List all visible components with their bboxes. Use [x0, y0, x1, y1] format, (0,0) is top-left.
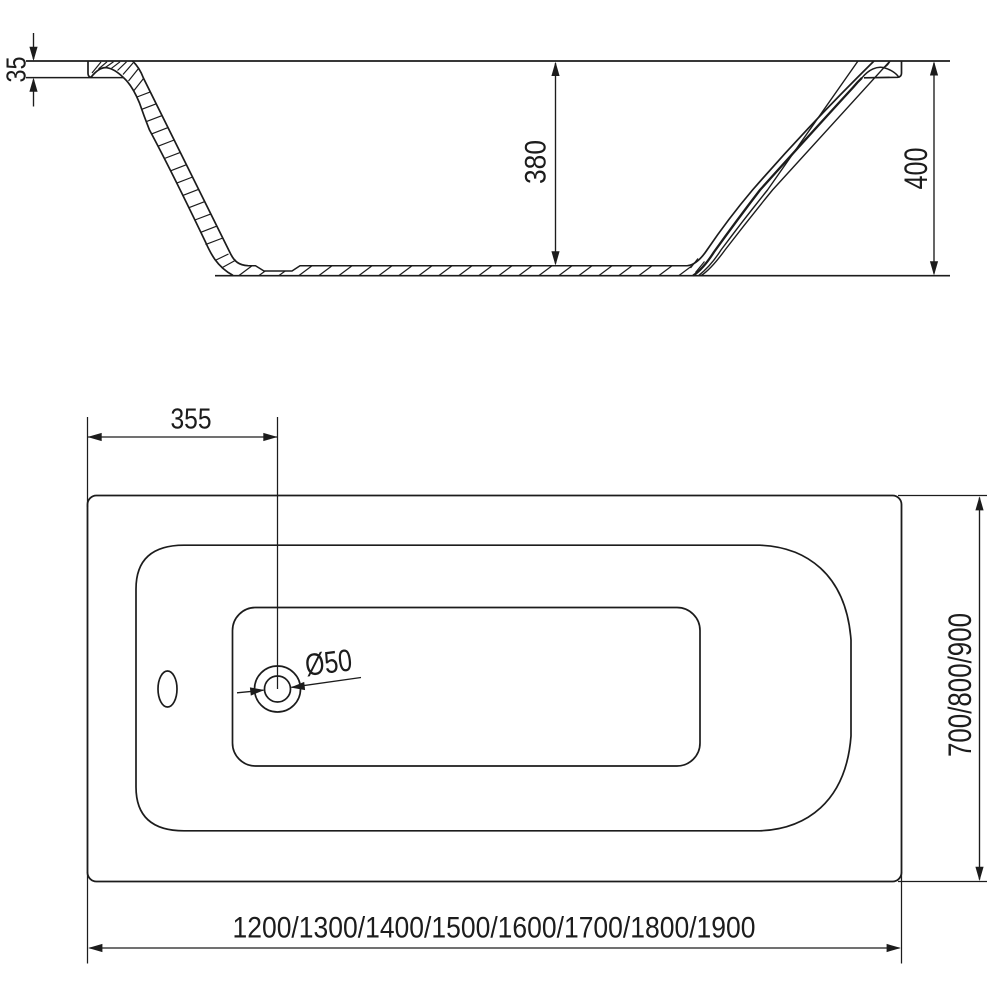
svg-text:Ø50: Ø50 [303, 642, 354, 682]
svg-text:355: 355 [171, 404, 212, 436]
svg-text:35: 35 [1, 57, 32, 83]
svg-text:400: 400 [898, 148, 934, 190]
svg-text:1200/1300/1400/1500/1600/1700/: 1200/1300/1400/1500/1600/1700/1800/1900 [233, 912, 756, 945]
svg-text:700/800/900: 700/800/900 [942, 613, 978, 757]
svg-text:380: 380 [520, 140, 553, 184]
